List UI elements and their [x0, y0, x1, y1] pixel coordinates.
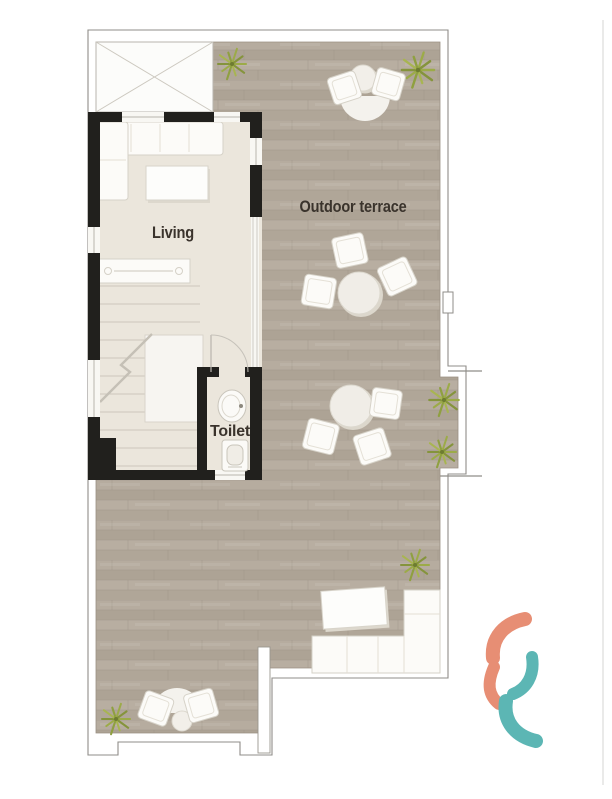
living-label: Living	[152, 223, 194, 242]
wc-toilet	[222, 440, 248, 471]
washbasin	[218, 390, 246, 422]
floor-plan-drawing: Living Outdoor terrace Toilet	[0, 0, 612, 799]
toilet-label: Toilet	[210, 423, 250, 440]
floor-plan-page: Living Outdoor terrace Toilet	[0, 0, 612, 799]
chair	[369, 387, 403, 420]
coffee-table	[146, 166, 210, 203]
tv-console	[97, 259, 190, 283]
logo-petal-salmon-bottom	[490, 667, 499, 704]
logo-petal-teal-top	[513, 657, 533, 694]
outdoor-table	[321, 587, 390, 633]
round-table	[338, 272, 380, 314]
logo-petal-teal-bottom	[506, 701, 536, 741]
round-table	[330, 385, 372, 427]
chair	[331, 232, 369, 269]
chair	[301, 274, 337, 310]
skylight-void	[96, 42, 213, 112]
edge-column	[443, 292, 453, 313]
brand-logo	[490, 619, 536, 741]
stair-landing	[145, 335, 203, 422]
logo-petal-salmon-top	[493, 619, 525, 658]
glass-wall	[251, 217, 259, 367]
terrace-label: Outdoor terrace	[300, 197, 407, 216]
terrace-divider-wall	[258, 647, 270, 753]
